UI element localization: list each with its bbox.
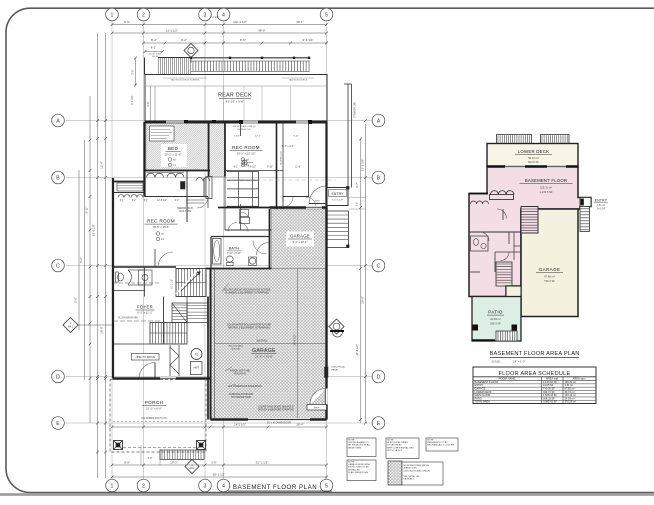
svg-text:5'-1" x 4'-9": 5'-1" x 4'-9" [332,199,343,201]
svg-text:IN ALL BEDROOMS: IN ALL BEDROOMS [348,471,368,474]
svg-text:6'-7": 6'-7" [355,182,359,187]
svg-text:29'-6 1/2": 29'-6 1/2" [92,224,96,237]
svg-text:PANEL: PANEL [332,368,340,371]
svg-text:SCALE:: SCALE: [491,360,501,364]
svg-text:STAIR DN 16R: STAIR DN 16R [354,102,357,118]
svg-text:67.85 m²: 67.85 m² [544,275,555,279]
svg-text:SMOKE ALARMS TO: SMOKE ALARMS TO [348,441,369,444]
svg-text:INSTALLED: INSTALLED [348,468,360,471]
svg-text:603.5 SF: 603.5 SF [528,160,539,164]
svg-text:3'-1": 3'-1" [144,200,149,202]
svg-text:PLUMBING & EQUIPMENT (STRAPPIN: PLUMBING & EQUIPMENT (STRAPPING) [225,292,269,295]
svg-text:2'-8": 2'-8" [357,202,359,207]
svg-text:THRESHOLD: THRESHOLD [237,129,251,131]
svg-text:8'-2": 8'-2" [151,38,157,42]
svg-text:PATIO: PATIO [488,310,503,315]
svg-text:24.93 m²: 24.93 m² [490,317,501,321]
svg-text:8'-11": 8'-11" [85,207,89,214]
svg-text:5'-9": 5'-9" [211,461,216,465]
svg-text:12'-6 1/2": 12'-6 1/2" [157,200,167,202]
svg-text:cm: cm [161,239,164,241]
svg-text:3'-1 1/2": 3'-1 1/2" [210,16,219,19]
svg-text:10'-2" x 11'-6": 10'-2" x 11'-6" [165,153,182,157]
svg-text:6'-10": 6'-10" [267,166,273,168]
svg-text:21'-0" x 6'-0": 21'-0" x 6'-0" [146,407,162,411]
svg-text:9'-2": 9'-2" [181,38,187,42]
svg-text:16' x 8' OVHD DOOR: 16' x 8' OVHD DOOR [267,422,291,425]
svg-text:29'-1": 29'-1" [296,20,303,24]
svg-text:9x9 TIMBER POSTS ON: 9x9 TIMBER POSTS ON [141,418,167,420]
svg-text:PORCH: PORCH [145,400,164,405]
svg-text:CARBON MONOXIDE: CARBON MONOXIDE [348,463,370,466]
svg-text:SNOW PLATE LINE (4): SNOW PLATE LINE (4) [233,125,256,128]
svg-text:PAGE A5.2: PAGE A5.2 [404,478,415,481]
svg-text:18'-5" x 15'-1": 18'-5" x 15'-1" [152,225,169,229]
svg-text:FOYER: FOYER [137,305,153,310]
svg-text:D: D [56,374,60,380]
svg-text:SEE DETAIL ON: SEE DETAIL ON [404,475,420,478]
svg-text:13'-1 1/2": 13'-1 1/2" [361,159,365,172]
svg-text:10'-1 1/2": 10'-1 1/2" [172,279,174,289]
svg-text:21'-8" x 35'-8": 21'-8" x 35'-8" [255,355,273,359]
svg-text:19'-2": 19'-2" [170,461,178,465]
svg-text:11'-1 1/2": 11'-1 1/2" [166,29,178,33]
svg-text:REAR DECK: REAR DECK [218,93,252,99]
svg-text:SOLAR WATER ROUGH-IN FOR FUTUR: SOLAR WATER ROUGH-IN FOR FUTURE [227,324,272,327]
svg-text:HOT WATER TANK: HOT WATER TANK [231,396,252,399]
svg-text:TAIL WOOD DECK: TAIL WOOD DECK [289,79,308,82]
svg-text:14'-2 1/2": 14'-2 1/2" [234,423,246,427]
svg-text:SOLAR CONDUIT ROUGH-IN FOR FUT: SOLAR CONDUIT ROUGH-IN FOR FUTURE [224,289,271,292]
svg-text:1: 1 [111,12,114,18]
svg-text:TOTAL AREA: TOTAL AREA [475,400,491,404]
svg-text:9'-1 1/2": 9'-1 1/2" [130,95,134,105]
svg-text:BASEMENT FLOOR PLAN: BASEMENT FLOOR PLAN [233,484,317,491]
svg-text:E: E [377,421,381,427]
svg-text:3'-0": 3'-0" [148,457,153,460]
svg-text:A4.2: A4.2 [190,467,196,470]
svg-text:730.3 SF: 730.3 SF [544,279,555,283]
svg-text:5: 5 [325,483,328,489]
svg-text:SLOPED CLG: SLOPED CLG [281,151,283,165]
svg-text:2: 2 [142,12,145,18]
svg-text:1/8" = 1'-0": 1/8" = 1'-0" [513,360,526,364]
svg-text:HWT: HWT [194,367,200,370]
svg-text:LOCATION BY: LOCATION BY [387,444,402,447]
svg-text:E: E [56,421,60,427]
svg-text:12'-4": 12'-4" [100,161,104,169]
svg-text:cm: cm [173,165,176,167]
svg-text:MFR CONFIDENTIAL GEO: MFR CONFIDENTIAL GEO [387,446,414,449]
svg-text:B: B [56,175,60,181]
svg-text:2: 2 [142,483,145,489]
svg-text:ELECTRICAL: ELECTRICAL [332,366,346,369]
svg-text:7'-6 1/2": 7'-6 1/2" [248,166,257,168]
svg-text:4: 4 [222,12,225,18]
svg-text:ENTRY: ENTRY [595,199,608,203]
svg-text:9'-9": 9'-9" [124,20,130,24]
svg-text:16'-4": 16'-4" [296,423,303,427]
svg-text:BATH: BATH [229,247,240,251]
svg-text:ENTRY: ENTRY [332,192,345,196]
svg-text:12'-1": 12'-1" [255,136,261,138]
svg-text:DUPLEX & WEATHER STRIPPING: DUPLEX & WEATHER STRIPPING [258,409,295,412]
svg-text:3: 3 [204,483,207,489]
svg-text:5'-1" x 4'-1": 5'-1" x 4'-1" [282,145,295,148]
svg-text:ALARM GU26: ALARM GU26 [404,467,418,470]
svg-text:BEDROOMS: BEDROOMS [348,447,361,449]
svg-text:SOCKET: SOCKET [232,348,242,350]
svg-text:REC ROOM: REC ROOM [232,145,260,150]
svg-text:9'-10": 9'-10" [293,136,299,138]
svg-text:7'-11" x 9'-11": 7'-11" x 9'-11" [227,252,241,255]
svg-text:370.26 m²: 370.26 m² [565,400,577,404]
svg-text:36'-0": 36'-0" [361,296,365,304]
svg-text:B: B [377,175,381,181]
svg-text:6'-2": 6'-2" [79,257,83,262]
svg-text:24'-8 1/2": 24'-8 1/2" [355,344,359,355]
svg-text:A: A [56,118,60,124]
svg-text:ROOM NAME: ROOM NAME [499,377,516,381]
svg-text:BED: BED [168,146,179,151]
svg-text:C: C [56,263,60,269]
svg-text:5 1/2": 5 1/2" [234,136,240,138]
svg-text:5: 5 [325,12,328,18]
svg-text:5'-2": 5'-2" [132,200,137,202]
svg-text:GARAGE: GARAGE [539,267,560,272]
svg-text:2'-8": 2'-8" [132,69,135,74]
svg-text:STEP: STEP [314,408,320,410]
svg-text:3rd STALL: 3rd STALL [256,340,268,343]
svg-text:56.07 m²: 56.07 m² [528,156,539,160]
svg-text:48'-0": 48'-0" [258,29,265,33]
svg-text:FURNACE ROOM AND: FURNACE ROOM AND [229,393,254,396]
svg-text:1,133.5 SF: 1,133.5 SF [539,190,553,194]
svg-text:DN 6R: DN 6R [152,56,159,58]
svg-text:3,985.41 SF: 3,985.41 SF [543,400,557,404]
svg-text:9'-1 3/4": 9'-1 3/4" [303,38,314,42]
svg-text:4: 4 [222,483,225,489]
svg-text:ROUGH-IN: ROUGH-IN [234,374,246,376]
svg-text:3: 3 [204,12,207,18]
svg-text:19'-1" x 12'-10": 19'-1" x 12'-10" [237,152,256,156]
svg-text:A4.1: A4.1 [68,326,74,329]
svg-text:14.0 SF: 14.0 SF [597,208,606,211]
svg-text:OPEN TO ABOVE: OPEN TO ABOVE [136,356,156,359]
svg-text:FLOOR AREA SCHEDULE: FLOOR AREA SCHEDULE [498,371,570,377]
svg-text:BE INSTALLED IN ALL: BE INSTALLED IN ALL [348,444,371,447]
svg-text:GARAGE: GARAGE [252,348,276,354]
svg-text:CLEAR OVHD DOOR 16x8 HOLD: CLEAR OVHD DOOR 16x8 HOLD [258,406,293,409]
svg-text:GARAGE: GARAGE [290,234,310,239]
svg-text:FD: FD [195,353,199,357]
svg-text:A: A [377,118,381,124]
svg-text:LOWER DECK: LOWER DECK [518,149,550,154]
svg-text:3'-1": 3'-1" [120,200,125,202]
svg-text:5'-0": 5'-0" [74,297,78,302]
svg-text:9'-9": 9'-9" [124,461,130,465]
svg-text:MECHANICALLY COOLER: MECHANICALLY COOLER [427,444,454,447]
svg-text:31'-1 1/2": 31'-1 1/2" [256,461,269,465]
svg-text:HEATING & EQUIPMENT (STRAPPING: HEATING & EQUIPMENT (STRAPPING) [228,327,270,330]
svg-text:BTTSL VA 20.3: BTTSL VA 20.3 [387,449,403,452]
svg-text:3068: 3068 [315,201,321,203]
svg-text:24'-8 1/2": 24'-8 1/2" [293,334,297,345]
svg-text:(UNCONDITIONED SPACE): (UNCONDITIONED SPACE) [404,469,431,472]
svg-text:VAULT ABV: VAULT ABV [179,210,192,213]
svg-text:9'-1" x 20'-1": 9'-1" x 20'-1" [292,240,307,244]
svg-text:4'-1": 4'-1" [151,46,157,50]
svg-text:BASEMENT FLOOR: BASEMENT FLOOR [525,178,567,183]
svg-text:11'-8": 11'-8" [295,166,301,168]
svg-text:18'-0": 18'-0" [100,326,104,334]
svg-text:1: 1 [111,483,114,489]
svg-text:ELECTRICAL PANEL: ELECTRICAL PANEL [387,441,409,444]
svg-text:FLUSH BEAM ABV: FLUSH BEAM ABV [118,317,138,320]
svg-text:41'-10" x 9'-6": 41'-10" x 9'-6" [226,100,244,104]
svg-text:BASEMENT FLOOR AREA PLAN: BASEMENT FLOOR AREA PLAN [489,351,579,357]
svg-text:105.31 m²: 105.31 m² [540,186,552,190]
svg-text:MONOMER 30MM SMOKE: MONOMER 30MM SMOKE [404,465,430,467]
svg-text:TAIL WOOD DECK SCREWS: TAIL WOOD DECK SCREWS [171,79,200,82]
svg-text:PLUG & WALL: PLUG & WALL [229,345,244,348]
svg-text:REC ROOM: REC ROOM [147,219,175,224]
svg-text:9'-6": 9'-6" [146,101,150,106]
svg-text:55'-1 1/2": 55'-1 1/2" [213,473,226,477]
svg-text:G.F. UNDERSLAB INSULATION: G.F. UNDERSLAB INSULATION [228,385,261,388]
svg-text:6'-1": 6'-1" [234,166,239,168]
svg-text:D: D [377,374,381,380]
svg-text:4'-1": 4'-1" [175,200,180,202]
svg-text:8'-5": 8'-5" [240,38,246,42]
svg-text:268.3 SF: 268.3 SF [490,322,501,326]
svg-text:6'-1" x 11'-2": 6'-1" x 11'-2" [137,311,152,315]
svg-text:102'-1 1/2": 102'-1 1/2" [233,20,247,24]
svg-text:RADON VENT AND: RADON VENT AND [230,370,251,373]
svg-text:C: C [377,263,381,269]
